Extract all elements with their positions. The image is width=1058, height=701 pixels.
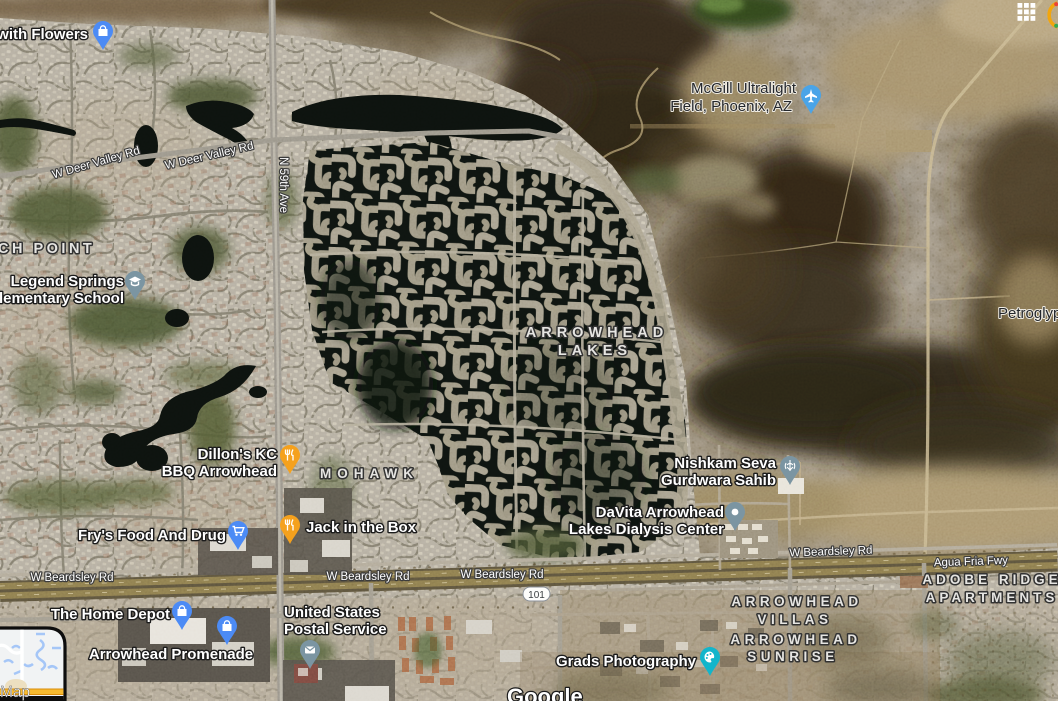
svg-text:Legend Springs: Legend Springs (11, 273, 124, 290)
svg-text:Gurdwara Sahib: Gurdwara Sahib (661, 472, 776, 489)
svg-text:Nishkam Seva: Nishkam Seva (674, 455, 776, 472)
svg-text:101: 101 (528, 590, 545, 601)
svg-text:W Beardsley Rd: W Beardsley Rd (326, 571, 409, 583)
svg-text:CH POINT: CH POINT (0, 241, 95, 257)
svg-text:United States: United States (284, 604, 380, 621)
svg-text:VILLAS: VILLAS (757, 612, 832, 627)
svg-text:with Flowers: with Flowers (0, 26, 88, 43)
svg-text:Arrowhead Promenade: Arrowhead Promenade (89, 646, 253, 663)
svg-text:W Beardsley Rd: W Beardsley Rd (460, 569, 543, 581)
svg-text:Grads Photography: Grads Photography (556, 653, 697, 670)
svg-text:BBQ Arrowhead: BBQ Arrowhead (162, 463, 277, 480)
svg-text:Postal Service: Postal Service (284, 621, 387, 638)
svg-text:Map: Map (0, 684, 30, 701)
svg-text:DaVita Arrowhead: DaVita Arrowhead (596, 504, 724, 521)
svg-text:ARROWHEAD: ARROWHEAD (731, 594, 862, 609)
svg-text:Field, Phoenix, AZ: Field, Phoenix, AZ (670, 98, 792, 115)
svg-text:W Beardsley Rd: W Beardsley Rd (30, 572, 113, 584)
svg-text:The Home Depot: The Home Depot (51, 606, 170, 623)
svg-text:MOHAWK: MOHAWK (320, 466, 419, 481)
svg-text:ARROWHEAD: ARROWHEAD (730, 632, 861, 647)
svg-text:Elementary School: Elementary School (0, 290, 124, 307)
svg-text:SUNRISE: SUNRISE (747, 649, 839, 664)
svg-text:Dillon's KC: Dillon's KC (198, 446, 278, 463)
svg-text:LAKES: LAKES (558, 343, 632, 359)
svg-text:APARTMENTS: APARTMENTS (926, 590, 1058, 605)
svg-text:Jack in the Box: Jack in the Box (306, 519, 417, 536)
svg-text:Lakes Dialysis Center: Lakes Dialysis Center (569, 521, 724, 538)
svg-text:ADOBE RIDGE: ADOBE RIDGE (922, 572, 1058, 587)
svg-text:McGill Ultralight: McGill Ultralight (691, 80, 797, 97)
svg-text:Petroglyp: Petroglyp (998, 305, 1058, 322)
svg-text:Google: Google (507, 684, 583, 701)
svg-text:N 59th Ave: N 59th Ave (277, 157, 289, 213)
svg-text:ARROWHEAD: ARROWHEAD (526, 325, 668, 341)
svg-text:Fry's Food And Drug: Fry's Food And Drug (78, 527, 226, 544)
